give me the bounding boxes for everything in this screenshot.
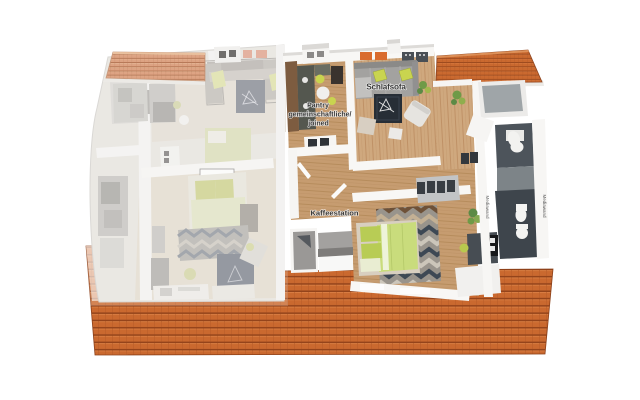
svg-text:Kaffeestation: Kaffeestation <box>310 209 358 218</box>
svg-text:Schlafsofa: Schlafsofa <box>366 82 406 91</box>
svg-text:gemeinschaftliche/: gemeinschaftliche/ <box>288 112 351 119</box>
svg-text:joined: joined <box>307 121 329 128</box>
svg-text:Mediawand: Mediawand <box>542 194 547 218</box>
svg-text:Mediawand: Mediawand <box>485 195 490 219</box>
svg-text:Pantry: Pantry <box>307 102 329 109</box>
